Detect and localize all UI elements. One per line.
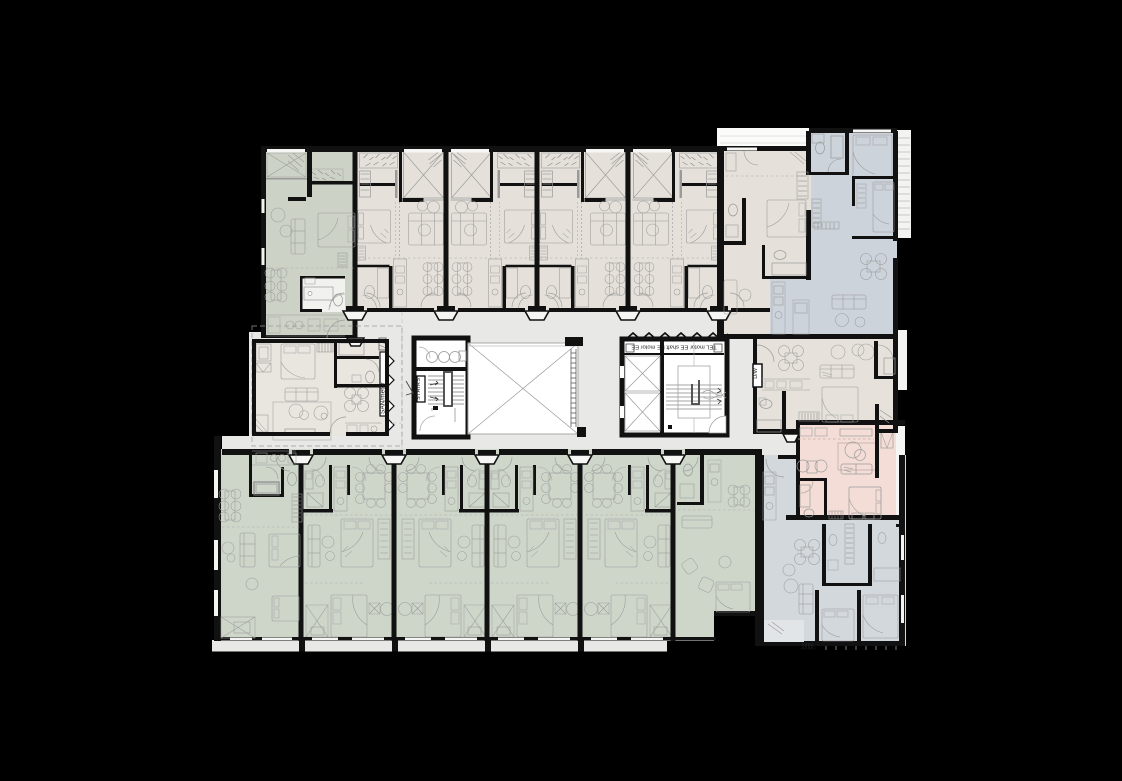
svg-text:D/W: D/W: [753, 367, 759, 379]
svg-text:STAIRS: STAIRS: [416, 378, 422, 400]
svg-text:TEL motor EE shaft EE motor EE: TEL motor EE shaft EE motor EE: [631, 344, 717, 350]
